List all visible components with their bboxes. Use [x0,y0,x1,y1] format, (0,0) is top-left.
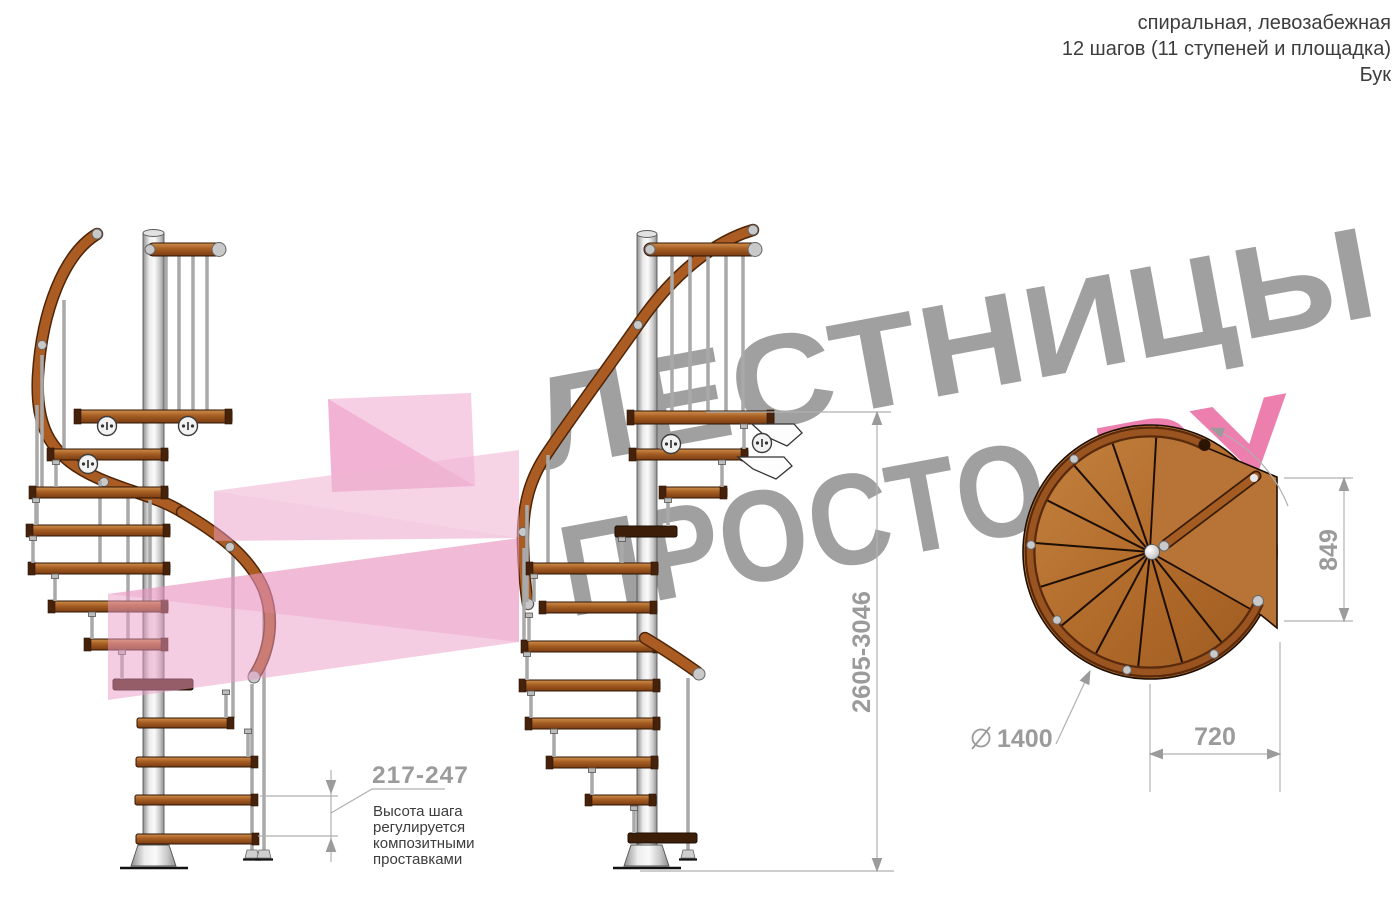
handrail-end-cap [92,229,102,239]
step-edge-on [615,526,677,537]
step [48,449,168,460]
drawing-canvas: спиральная, левозабежная 12 шагов (11 ст… [0,0,1400,907]
step [27,525,170,536]
pole-top-ball [1145,545,1160,560]
baluster-dot [1123,666,1132,675]
rail-end-cap [1250,474,1258,482]
step-edge-on [628,833,697,843]
rail-pole-clamp [645,245,655,255]
landing-top-rail [644,243,758,256]
step [526,718,660,729]
step [527,563,658,574]
baluster-connector-disc [662,435,681,454]
baluster-dot [1210,650,1219,659]
diameter-symbol [972,727,990,749]
dimension-diameter: 1400 [972,671,1090,753]
step [135,795,257,805]
pole-base-flange [624,845,669,866]
step [136,757,257,767]
watermark-logo [108,393,519,700]
total-height-value: 2605-3046 [848,591,876,713]
handrail-end-cap [693,668,705,680]
step [540,602,657,613]
baluster-connector-disc [79,455,98,474]
baluster-dot [1027,541,1036,550]
dimension-step-height: 217-247 Высота шага регулируется компози… [258,762,475,868]
baluster-connector-disc [98,417,117,436]
plan-view [1023,425,1277,679]
rail-pole-clamp [145,245,155,255]
staircase-drawing: ЛЕСТНИЦЫ ПРОСТО .РУ [0,0,1400,907]
handrail-end-cap [1253,596,1264,607]
pole-base-flange [131,845,176,866]
step [547,757,658,768]
landing-board [628,411,774,424]
step [586,795,656,805]
step [29,563,170,574]
rail-joint [1159,541,1169,551]
landing-width-value: 720 [1194,723,1236,751]
rail-end-cap [212,243,226,257]
step [136,834,258,844]
baluster-connector-disc [753,434,772,453]
step [522,641,660,652]
pole-top-cap [637,231,657,238]
baluster-dot [1070,455,1079,464]
step [630,449,748,460]
rail-end-cap [748,243,762,257]
step [660,487,727,498]
handrail-joint [634,321,643,330]
baluster-foot [679,850,697,860]
pole-top-cap [143,230,164,237]
svg-text:регулируется: регулируется [373,819,465,836]
baluster-connector-disc [179,417,198,436]
step [520,680,660,691]
landing-side-value: 849 [1315,529,1343,571]
diameter-value: 1400 [997,725,1053,753]
baluster-dot [1053,616,1062,625]
handrail-joint [38,341,47,350]
step [137,718,233,728]
step-height-value: 217-247 [372,762,469,789]
handrail-joint [226,543,235,552]
step-height-note: Высота шага регулируется композитными пр… [373,803,475,868]
handrail-end-cap [748,225,758,235]
left-elevation-view [26,229,273,868]
svg-text:проставками: проставками [373,851,462,868]
handrail-end-cap [1199,439,1211,451]
svg-text:Высота шага: Высота шага [373,803,463,820]
svg-text:композитными: композитными [373,835,475,852]
step [30,487,168,498]
